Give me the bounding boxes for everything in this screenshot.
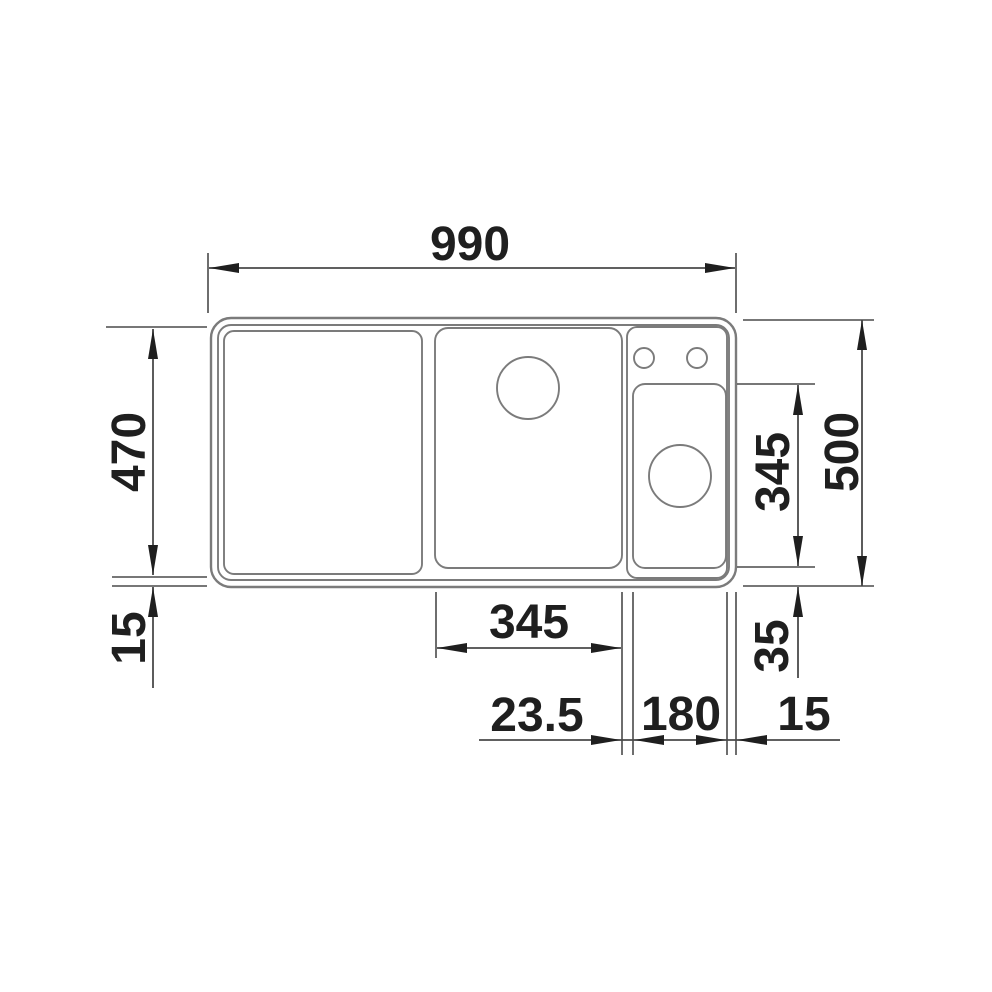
arrowhead [793, 587, 803, 617]
dim-main-bowl-width: 345 [437, 596, 621, 653]
dim-label: 500 [816, 412, 869, 492]
arrowhead [148, 545, 158, 575]
arrowhead [437, 643, 467, 653]
right-bowl [633, 384, 726, 568]
arrowhead [857, 556, 867, 586]
arrowhead [857, 320, 867, 350]
sink-outer-rim [211, 318, 736, 587]
accessory-compartment [627, 327, 727, 578]
main-bowl-drain-hole [497, 357, 559, 419]
dim-label: 345 [489, 596, 569, 649]
right-bowl-drain-hole [649, 445, 711, 507]
arrowhead [148, 329, 158, 359]
arrowhead [209, 263, 239, 273]
dim-right-bowl-bottom-offset: 35 [746, 587, 803, 678]
dim-label: 35 [746, 619, 799, 672]
dim-label: 345 [747, 432, 800, 512]
dim-inner-depth: 470 [103, 329, 158, 575]
arrowhead [793, 385, 803, 415]
main-bowl [435, 328, 622, 568]
dim-right-bowl-depth: 345 [747, 385, 803, 566]
dim-label-divider-width: 23.5 [490, 689, 583, 742]
arrowhead [737, 735, 767, 745]
arrowhead [793, 536, 803, 566]
dim-label: 990 [430, 218, 510, 271]
dim-bottom-chain: 23.5 180 15 [479, 688, 840, 745]
arrowhead [591, 735, 621, 745]
drainboard-area [224, 331, 422, 574]
dim-overall-depth: 500 [816, 320, 869, 586]
dim-label: 15 [103, 611, 156, 664]
arrowhead [591, 643, 621, 653]
tap-hole-1 [634, 348, 654, 368]
dim-overall-width: 990 [209, 218, 735, 273]
dim-label: 470 [103, 412, 156, 492]
arrowhead [705, 263, 735, 273]
drawing-area: 990 470 15 345 35 500 345 [0, 0, 992, 992]
dim-label-rim-right: 15 [777, 688, 830, 741]
sink-dimension-diagram: 990 470 15 345 35 500 345 [0, 0, 992, 992]
tap-hole-2 [687, 348, 707, 368]
dim-rim-bottom-left: 15 [103, 587, 158, 688]
sink-outline [211, 318, 736, 587]
dim-label-right-bowl-width: 180 [641, 688, 721, 741]
